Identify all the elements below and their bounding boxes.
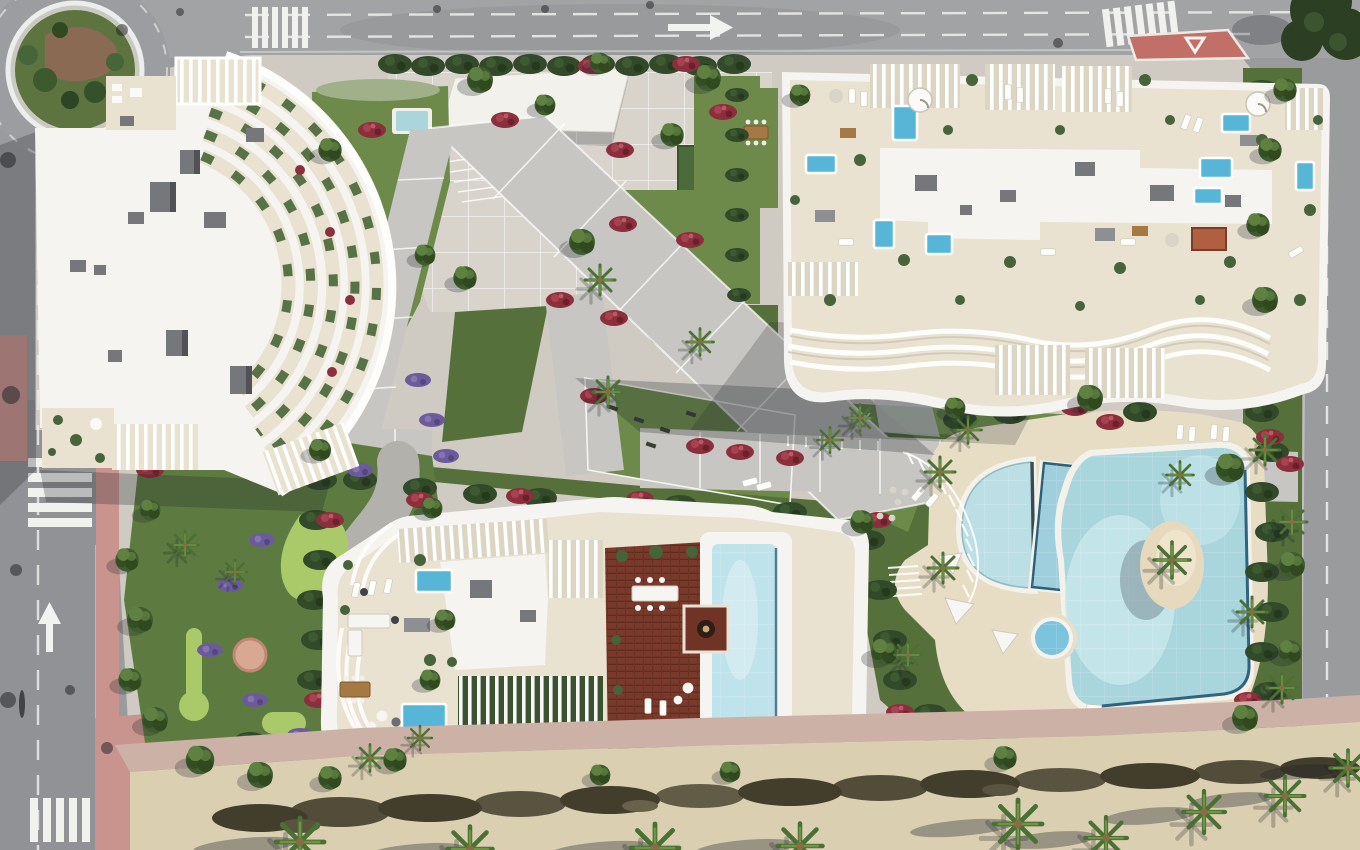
- jacuzzi: [1027, 613, 1077, 663]
- dining-lawn: [740, 88, 778, 208]
- s-plunge-pool-1: [416, 570, 452, 592]
- golf-sand-circle: [234, 639, 266, 671]
- building-northeast: [782, 64, 1330, 417]
- white-hedge: [316, 79, 440, 101]
- putting-green-2: [186, 628, 202, 700]
- nw-top-pergola: [176, 58, 260, 104]
- ne-outdoor-rug: [1192, 228, 1226, 250]
- traffic-island: [1128, 30, 1248, 60]
- shadow-northwest-tower: [0, 132, 36, 505]
- aerial-render: Aerial top-down architectural rendering …: [0, 0, 1360, 850]
- s-bridge-pergola: [548, 540, 603, 598]
- render-stage: Aerial top-down architectural rendering …: [0, 0, 1360, 850]
- road-tone: [340, 4, 900, 56]
- s-firepit: [684, 606, 728, 652]
